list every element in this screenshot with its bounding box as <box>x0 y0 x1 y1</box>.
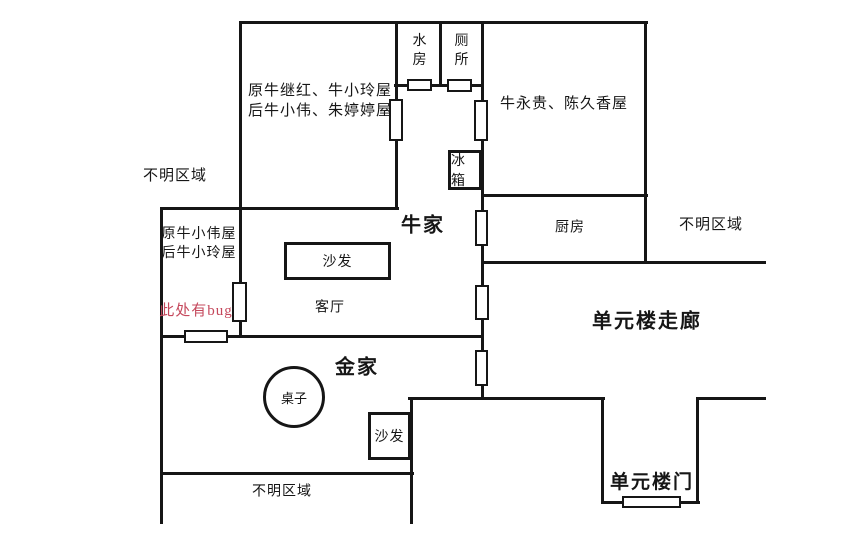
label-unknown-bottom: 不明区域 <box>252 484 312 503</box>
door-corridor-mid <box>475 285 489 320</box>
wall-waterroom-toilet-divider <box>439 21 442 87</box>
wall-entry-alcove-left <box>601 397 604 504</box>
wall-entry-alcove-right <box>696 397 699 504</box>
label-north-room: 原牛继红、牛小玲屋 后牛小伟、朱婷婷屋 <box>248 81 392 122</box>
floor-plan: 沙发冰箱沙发桌子原牛继红、牛小玲屋 后牛小伟、朱婷婷屋牛永贵、陈久香屋水 房厕 … <box>0 0 852 540</box>
label-unit-corridor: 单元楼走廊 <box>592 309 702 336</box>
door-kitchen <box>475 210 488 246</box>
wall-east-rooms-right <box>644 21 647 264</box>
door-unit-building <box>622 496 681 508</box>
label-xiaowei-room: 原牛小伟屋 后牛小玲屋 <box>162 226 237 264</box>
wall-corridor-bottom-left <box>408 397 605 400</box>
sofa-niu-livingroom: 沙发 <box>284 242 391 280</box>
door-niu-home <box>184 330 228 343</box>
table-jin-home: 桌子 <box>263 366 325 428</box>
label-jin-home: 金家 <box>335 355 379 382</box>
door-niuyonggui-room <box>474 100 488 141</box>
label-unknown-top-left: 不明区域 <box>143 166 207 186</box>
door-toilet <box>447 79 472 92</box>
label-unit-door: 单元楼门 <box>610 470 694 496</box>
wall-top <box>239 21 648 24</box>
door-xiaowei-room <box>232 282 247 322</box>
wall-northroom-bottom <box>160 207 399 210</box>
label-bug-note: 此处有bug <box>159 301 233 321</box>
label-niu-home: 牛家 <box>401 213 445 240</box>
label-water-room: 水 房 <box>413 33 428 71</box>
label-toilet: 厕 所 <box>455 33 470 71</box>
wall-corridor-bottom-right <box>696 397 766 400</box>
door-water-room <box>407 79 432 91</box>
wall-jin-home-bottom <box>160 472 414 475</box>
wall-corridor-top <box>481 261 766 264</box>
fridge: 冰箱 <box>448 150 482 190</box>
label-kitchen: 厨房 <box>555 220 585 239</box>
label-niuyonggui-room: 牛永贵、陈久香屋 <box>500 94 628 114</box>
sofa-jin-home: 沙发 <box>368 412 411 460</box>
label-unknown-right: 不明区域 <box>679 215 743 235</box>
wall-kitchen-top <box>481 194 648 197</box>
door-jin-home <box>475 350 488 386</box>
label-livingroom: 客厅 <box>315 300 345 319</box>
